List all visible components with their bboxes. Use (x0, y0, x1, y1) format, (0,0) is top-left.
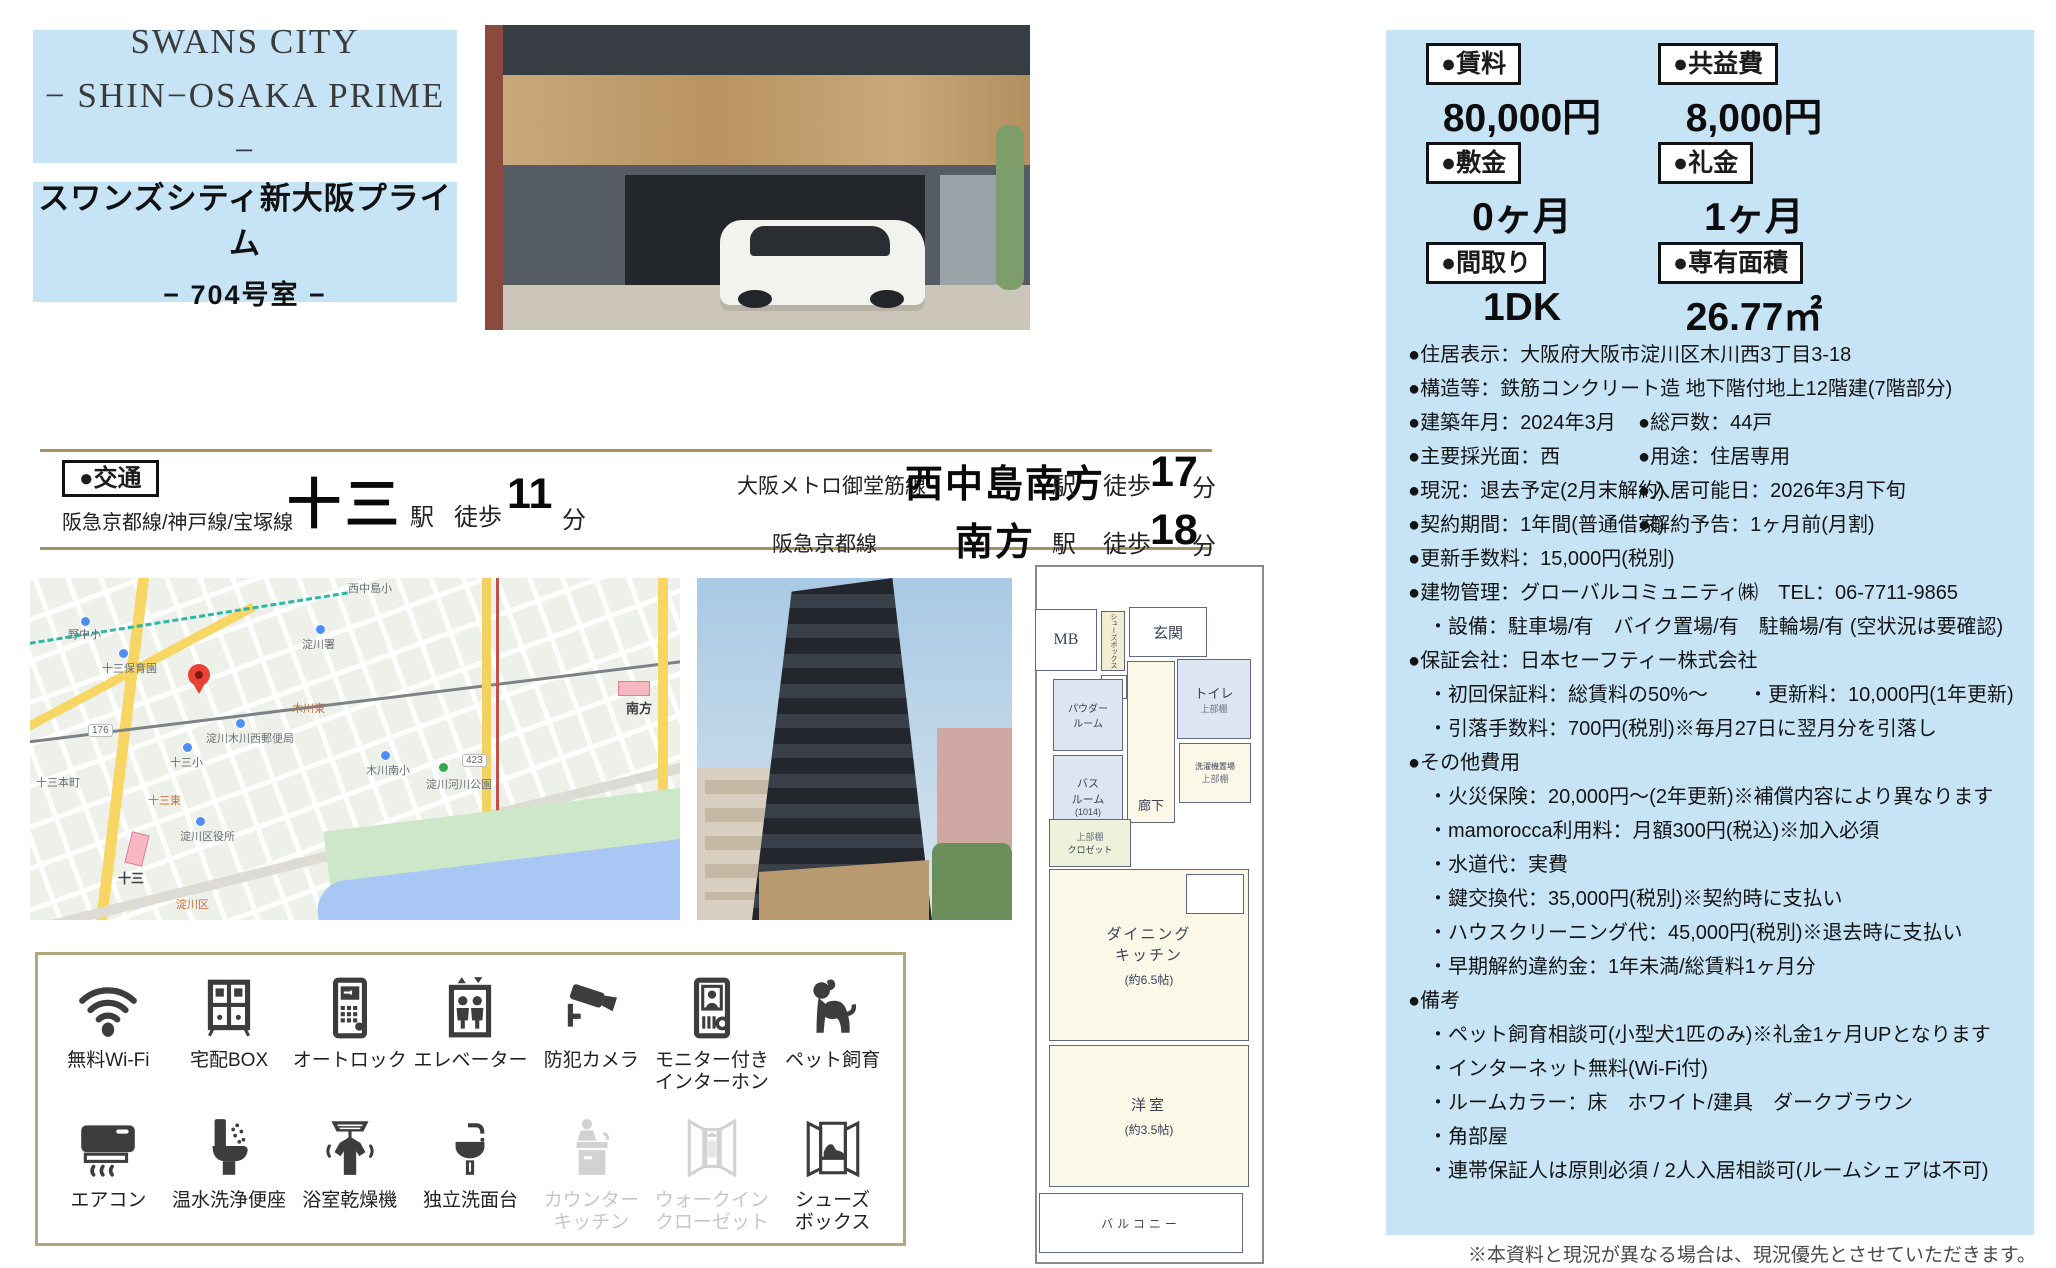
fp-dk-label-line2: キッチン (1115, 944, 1183, 965)
route-walk-label: 徒歩 (454, 497, 502, 532)
detail-row: ●主要採光面：西●用途：住居専用 (1408, 440, 2023, 474)
photo-neighbor-building (485, 25, 503, 330)
car-windshield (750, 226, 890, 256)
photo-balcony-strip (503, 25, 1030, 75)
route-minutes-unit: 分 (1192, 526, 1216, 561)
detail-text: ・ハウスクリーニング代：45,000円(税別)※退去時に支払い (1408, 916, 1963, 950)
photo-wood-panel (503, 75, 1030, 165)
detail-text: ●保証会社：日本セーフティー株式会社 (1408, 644, 1758, 678)
detail-row: ●建築年月：2024年3月●総戸数：44戸 (1408, 406, 2023, 440)
detail-text: ・早期解約違約金：1年未満/総賃料1ヶ月分 (1408, 950, 1816, 984)
route-minutes-unit: 分 (562, 500, 586, 535)
map-label: 十三東 (148, 792, 181, 808)
amenity-label: 宅配BOX (190, 1050, 268, 1072)
amenity-aircon: エアコン (48, 1109, 169, 1249)
detail-row: ・火災保険：20,000円～(2年更新)※補償内容により異なります (1408, 780, 2023, 814)
property-flyer: SWANS CITY − SHIN−OSAKA PRIME − スワンズシティ新… (0, 0, 2056, 1268)
detail-text-right: ●入居可能日：2026年3月下旬 (1638, 474, 1906, 508)
amenity-shoebox: シューズ ボックス (772, 1109, 893, 1249)
fp-bath-label: バス ルーム (1072, 775, 1105, 807)
detail-text: ●主要採光面：西 (1408, 440, 1560, 474)
detail-row: ●更新手数料：15,000円(税別) (1408, 542, 2023, 576)
detail-row: ●契約期間：1年間(普通借家)●解約予告：1ヶ月前(月割) (1408, 508, 2023, 542)
detail-text-right: ●総戸数：44戸 (1638, 406, 1772, 440)
route-minutes-unit: 分 (1192, 468, 1216, 503)
amenity-label: ウォークイン クローゼット (655, 1190, 769, 1234)
route-walk-label: 徒歩 (1103, 524, 1151, 559)
pet-icon (800, 975, 866, 1041)
detail-row: ・連帯保証人は原則必須 / 2人入居相談可(ルームシェアは不可) (1408, 1154, 2023, 1188)
amenity-elevator: エレベーター (410, 969, 531, 1109)
amenities-box: 無料Wi-Fi 宅配BOX オートロック エレベーター 防犯カメラ モニター付き (35, 952, 906, 1246)
amenity-counter-kitchen: カウンター キッチン (531, 1109, 652, 1249)
layout-label-box: ●間取り (1426, 242, 1546, 284)
amenity-intercom: モニター付き インターホン (652, 969, 773, 1109)
building-photo (697, 578, 1012, 920)
detail-text: ●その他費用 (1408, 746, 1520, 780)
map-label: 淀川河川公園 (426, 776, 492, 792)
detail-row: ・早期解約違約金：1年未満/総賃料1ヶ月分 (1408, 950, 2023, 984)
detail-text: ●住居表示：大阪府大阪市淀川区木川西3丁目3-18 (1408, 338, 1851, 372)
fp-corridor-label: 廊下 (1138, 795, 1164, 814)
photo-greenery (932, 843, 1012, 920)
fp-powder-room: パウダー ルーム (1053, 679, 1123, 751)
title-ja-box: スワンズシティ新大阪プライム − 704号室 − (33, 182, 457, 302)
amenity-sink: 独立洗面台 (410, 1109, 531, 1249)
building-name-en-line1: SWANS CITY (33, 15, 457, 69)
rent-value: 80,000円 (1402, 87, 1642, 143)
detail-text: ●構造等：鉄筋コンクリート造 地下階付地上12階建(7階部分) (1408, 372, 1952, 406)
transport-section-label-box: ●交通 (62, 458, 159, 493)
fee-value: 8,000円 (1634, 87, 1874, 143)
amenity-wifi: 無料Wi-Fi (48, 969, 169, 1109)
amenities-grid: 無料Wi-Fi 宅配BOX オートロック エレベーター 防犯カメラ モニター付き (38, 955, 903, 1249)
security-camera-icon (558, 975, 624, 1041)
aircon-icon (75, 1115, 141, 1181)
summary-panel: ●賃料 80,000円 ●共益費 8,000円 ●敷金 0ヶ月 ●礼金 1ヶ月 … (1386, 30, 2034, 1235)
detail-row: ・角部屋 (1408, 1120, 2023, 1154)
delivery-box-icon (196, 975, 262, 1041)
fp-laundry: 洗濯機置場 上部棚 (1179, 743, 1251, 803)
map-label: 淀川区 (176, 896, 209, 912)
fp-dk-size: (約6.5帖) (1125, 971, 1174, 988)
detail-text: ・ペット飼育相談可(小型犬1匹のみ)※礼金1ヶ月UPとなります (1408, 1018, 1991, 1052)
shoebox-icon (800, 1115, 866, 1181)
detail-text: ●現況：退去予定(2月末解約) (1408, 474, 1665, 508)
detail-text: ・火災保険：20,000円～(2年更新)※補償内容により異なります (1408, 780, 1993, 814)
amenity-label: 防犯カメラ (544, 1050, 639, 1072)
detail-text: ●備考 (1408, 984, 1460, 1018)
amenity-delivery-box: 宅配BOX (169, 969, 290, 1109)
fp-bedroom: 洋室 (約3.5帖) (1049, 1045, 1249, 1187)
detail-row: ●住居表示：大阪府大阪市淀川区木川西3丁目3-18 (1408, 338, 2023, 372)
elevator-icon (437, 975, 503, 1041)
amenity-label: 無料Wi-Fi (67, 1050, 149, 1072)
detail-row: ・インターネット無料(Wi-Fi付) (1408, 1052, 2023, 1086)
rent-label: ●賃料 (1426, 43, 1521, 85)
fp-closet-shelf-note: 上部棚 (1076, 830, 1103, 843)
map-label: 十三小 (170, 754, 203, 770)
amenity-bath-dryer: 浴室乾燥機 (289, 1109, 410, 1249)
fp-bath-size: (1014) (1075, 807, 1101, 817)
map-label: 淀川木川西郵便局 (206, 730, 294, 746)
rent-label-box: ●賃料 (1426, 43, 1521, 85)
amenity-label: カウンター キッチン (544, 1190, 639, 1234)
map-property-pin (188, 664, 210, 686)
amenity-label: 温水洗浄便座 (172, 1190, 286, 1212)
key-money-value: 1ヶ月 (1634, 186, 1874, 242)
route-line-name: 大阪メトロ御堂筋線 (737, 470, 926, 500)
fp-bedroom-size: (約3.5帖) (1125, 1121, 1174, 1138)
wifi-icon (75, 975, 141, 1041)
detail-row: ・ペット飼育相談可(小型犬1匹のみ)※礼金1ヶ月UPとなります (1408, 1018, 2023, 1052)
fp-toilet-shelf-note: 上部棚 (1200, 702, 1227, 715)
detail-text: ・ルームカラー：床 ホワイト/建具 ダークブラウン (1408, 1086, 1913, 1120)
detail-text: ・初回保証料：総賃料の50%～ ・更新料：10,000円(1年更新) (1408, 678, 2014, 712)
detail-row: ●備考 (1408, 984, 2023, 1018)
fp-shoes-label: シューズボックス (1108, 613, 1118, 669)
amenity-label: オートロック (293, 1050, 407, 1072)
building-name-en-line2: − SHIN−OSAKA PRIME − (33, 69, 457, 178)
fp-dk-label-line1: ダイニング (1106, 923, 1191, 944)
transport-rule-bottom (40, 547, 1212, 550)
washlet-icon (196, 1115, 262, 1181)
amenity-label: シューズ ボックス (795, 1190, 870, 1234)
map-poi-marker (118, 648, 129, 659)
bath-dryer-icon (317, 1115, 383, 1181)
map-poi-marker (315, 624, 326, 635)
car-wheel-left (738, 290, 772, 308)
detail-text: ・mamorocca利用料：月額300円(税込)※加入必須 (1408, 814, 1879, 848)
layout-label: ●間取り (1426, 242, 1546, 284)
detail-row: ●構造等：鉄筋コンクリート造 地下階付地上12階建(7階部分) (1408, 372, 2023, 406)
area-value: 26.77㎡ (1634, 286, 1874, 342)
amenity-autolock: オートロック (289, 969, 410, 1109)
building-name-ja: スワンズシティ新大阪プライム (33, 173, 457, 263)
sink-icon (437, 1115, 503, 1181)
detail-row: ・ルームカラー：床 ホワイト/建具 ダークブラウン (1408, 1086, 2023, 1120)
detail-text: ・インターネット無料(Wi-Fi付) (1408, 1052, 1708, 1086)
deposit-label: ●敷金 (1426, 142, 1521, 184)
map-label: 淀川署 (302, 636, 335, 652)
fee-label: ●共益費 (1658, 43, 1778, 85)
fp-dining-kitchen: ダイニング キッチン (約6.5帖) (1049, 869, 1249, 1041)
deposit-value: 0ヶ月 (1402, 186, 1642, 242)
detail-text: ・連帯保証人は原則必須 / 2人入居相談可(ルームシェアは不可) (1408, 1154, 1989, 1188)
amenity-washlet: 温水洗浄便座 (169, 1109, 290, 1249)
detail-text: ●建物管理：グローバルコミュニティ㈱ TEL：06-7711-9865 (1408, 576, 1958, 610)
detail-text: ●契約期間：1年間(普通借家) (1408, 508, 1665, 542)
layout-value: 1DK (1402, 286, 1642, 330)
map-label: 十三保育園 (102, 660, 157, 676)
route-station-suffix: 駅 (410, 497, 434, 532)
map-route-shield: 423 (462, 754, 487, 767)
transport-section-label: ●交通 (62, 460, 159, 497)
detail-list: ●住居表示：大阪府大阪市淀川区木川西3丁目3-18 ●構造等：鉄筋コンクリート造… (1408, 338, 2023, 1188)
map-label: 木川南小 (366, 762, 410, 778)
route-line-name: 阪急京都線 (772, 528, 877, 558)
transport-rule-top (40, 449, 1212, 452)
amenity-label: 独立洗面台 (423, 1190, 518, 1212)
fp-toilet-label: トイレ (1194, 683, 1233, 702)
detail-row: ●建物管理：グローバルコミュニティ㈱ TEL：06-7711-9865 (1408, 576, 2023, 610)
map-poi-marker (235, 718, 246, 729)
amenity-pet: ペット飼育 (772, 969, 893, 1109)
detail-row: ・ハウスクリーニング代：45,000円(税別)※退去時に支払い (1408, 916, 2023, 950)
fp-entrance: 玄関 (1129, 607, 1207, 657)
fp-laundry-shelf-note: 上部棚 (1201, 772, 1228, 785)
entrance-photo (485, 25, 1030, 330)
key-money-label-box: ●礼金 (1658, 142, 1753, 184)
photo-pink-building (937, 728, 1012, 848)
title-en-box: SWANS CITY − SHIN−OSAKA PRIME − (33, 30, 457, 163)
detail-row: ・鍵交換代：35,000円(税別)※契約時に支払い (1408, 882, 2023, 916)
fp-balcony-label: バルコニー (1101, 1215, 1181, 1232)
detail-text: ・水道代：実費 (1408, 848, 1568, 882)
route-station-suffix: 駅 (1052, 466, 1076, 501)
fp-shoe-box: シューズボックス (1101, 611, 1125, 671)
detail-row: ・設備：駐車場/有 バイク置場/有 駐輪場/有 (空状況は要確認) (1408, 610, 2023, 644)
amenity-security-camera: 防犯カメラ (531, 969, 652, 1109)
map-poi-marker (380, 750, 391, 761)
route-station-suffix: 駅 (1052, 524, 1076, 559)
fp-laundry-label: 洗濯機置場 (1195, 761, 1235, 772)
fp-bedroom-label: 洋室 (1131, 1094, 1167, 1115)
detail-text-right: ●解約予告：1ヶ月前(月割) (1638, 508, 1875, 542)
fp-kitchen-counter (1186, 874, 1244, 914)
detail-row: ・初回保証料：総賃料の50%～ ・更新料：10,000円(1年更新) (1408, 678, 2023, 712)
map-label: 野中小 (68, 626, 101, 642)
amenity-label: ペット飼育 (785, 1050, 880, 1072)
fp-corridor: 廊下 (1127, 661, 1175, 823)
detail-text-right: ●用途：住居専用 (1638, 440, 1790, 474)
amenity-label: エアコン (70, 1190, 146, 1212)
location-map: 野中小 十三保育園 西中島小 淀川署 木川東 淀川木川西郵便局 十三小 十三東 … (30, 578, 680, 920)
detail-text: ・設備：駐車場/有 バイク置場/有 駐輪場/有 (空状況は要確認) (1408, 610, 2003, 644)
route-minutes: 17 (1150, 448, 1198, 497)
autolock-icon (317, 975, 383, 1041)
detail-row: ・引落手数料：700円(税別)※毎月27日に翌月分を引落し (1408, 712, 2023, 746)
map-label-station: 南方 (626, 698, 652, 717)
detail-text: ・引落手数料：700円(税別)※毎月27日に翌月分を引落し (1408, 712, 1937, 746)
detail-text: ・角部屋 (1408, 1120, 1508, 1154)
fp-closet: 上部棚 クロゼット (1049, 819, 1131, 867)
route-station: 十三 (287, 460, 403, 539)
map-route-shield: 176 (88, 724, 113, 737)
detail-text: ●建築年月：2024年3月 (1408, 406, 1616, 440)
route-minutes: 18 (1150, 506, 1198, 555)
deposit-label-box: ●敷金 (1426, 142, 1521, 184)
map-poi-marker (195, 816, 206, 827)
fp-toilet: トイレ 上部棚 (1177, 659, 1251, 739)
key-money-label: ●礼金 (1658, 142, 1753, 184)
detail-text: ・鍵交換代：35,000円(税別)※契約時に支払い (1408, 882, 1843, 916)
detail-row: ・mamorocca利用料：月額300円(税込)※加入必須 (1408, 814, 2023, 848)
photo-white-car (720, 220, 925, 305)
detail-row: ●保証会社：日本セーフティー株式会社 (1408, 644, 2023, 678)
amenity-walk-in-closet: ウォークイン クローゼット (652, 1109, 773, 1249)
area-label: ●専有面積 (1658, 242, 1803, 284)
fp-closet-label: クロゼット (1067, 843, 1112, 856)
map-label: 西中島小 (348, 580, 392, 596)
area-label-box: ●専有面積 (1658, 242, 1803, 284)
map-minamikata-station-shape (618, 681, 650, 696)
floor-plan: MB シューズボックス 玄関 PS トイレ 上部棚 パウダー ルーム バス ルー… (1035, 565, 1264, 1264)
room-number: − 704号室 − (33, 273, 457, 312)
map-label: 木川東 (292, 700, 325, 716)
intercom-icon (679, 975, 745, 1041)
map-label-station: 十三 (118, 868, 144, 887)
photo-plant (996, 125, 1024, 290)
route-station: 南方 (955, 511, 1035, 566)
detail-row: ●現況：退去予定(2月末解約)●入居可能日：2026年3月下旬 (1408, 474, 2023, 508)
route-line-name: 阪急京都線/神戸線/宝塚線 (62, 506, 293, 535)
detail-text: ●更新手数料：15,000円(税別) (1408, 542, 1675, 576)
fee-label-box: ●共益費 (1658, 43, 1778, 85)
fp-balcony: バルコニー (1039, 1193, 1243, 1253)
amenity-label: 浴室乾燥機 (302, 1190, 397, 1212)
amenity-label: エレベーター (413, 1050, 527, 1072)
map-juso-station-shape (124, 831, 149, 866)
car-wheel-right (870, 290, 904, 308)
route-walk-label: 徒歩 (1103, 466, 1151, 501)
fp-mb-label: MB (1054, 631, 1079, 649)
walk-in-closet-icon (679, 1115, 745, 1181)
map-poi-marker (182, 742, 193, 753)
map-label: 淀川区役所 (180, 828, 235, 844)
map-park-marker (438, 762, 449, 773)
footer-disclaimer: ※本資料と現況が異なる場合は、現況優先とさせていただきます。 (1468, 1240, 2036, 1267)
route-minutes: 11 (507, 470, 552, 519)
counter-kitchen-icon (558, 1115, 624, 1181)
fp-meter-box: MB (1035, 609, 1097, 671)
fp-entrance-label: 玄関 (1153, 622, 1183, 643)
amenity-label: モニター付き インターホン (655, 1050, 769, 1094)
detail-row: ●その他費用 (1408, 746, 2023, 780)
map-label: 十三本町 (36, 774, 80, 790)
detail-row: ・水道代：実費 (1408, 848, 2023, 882)
fp-powder-label: パウダー ルーム (1068, 700, 1108, 730)
photo-side-building (940, 175, 1000, 290)
